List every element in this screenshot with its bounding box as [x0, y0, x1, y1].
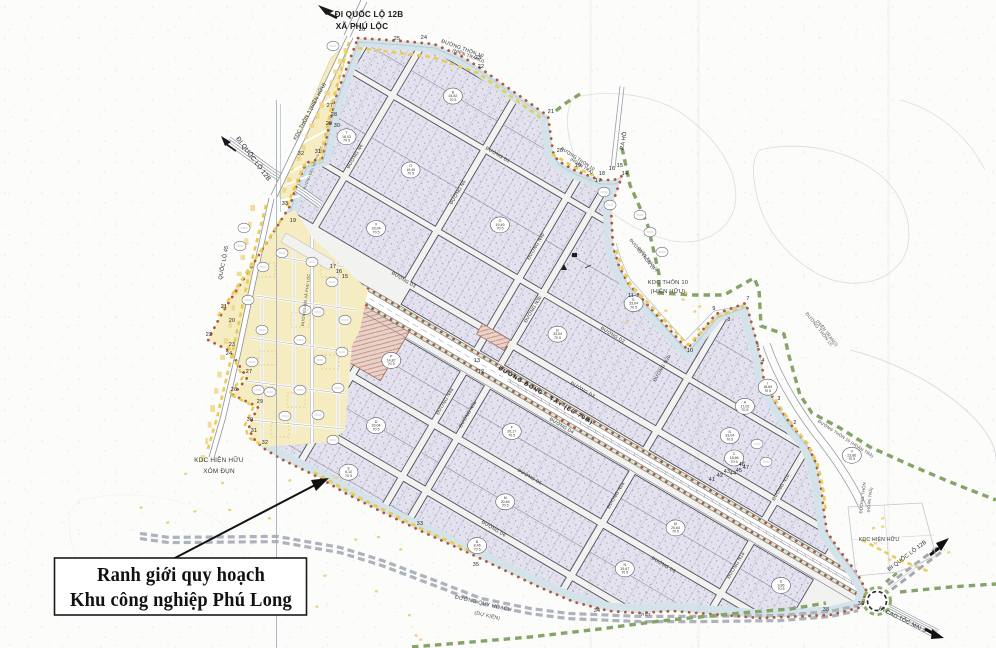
- svg-text:70 5: 70 5: [764, 389, 771, 393]
- svg-text:KDC THÔN 10: KDC THÔN 10: [648, 279, 688, 286]
- svg-text:RST: RST: [641, 612, 651, 617]
- svg-text:70 5: 70 5: [345, 474, 352, 478]
- svg-text:27: 27: [246, 369, 252, 375]
- svg-text:70 5: 70 5: [726, 438, 733, 442]
- svg-text:29: 29: [326, 121, 332, 127]
- svg-text:28: 28: [231, 387, 237, 393]
- svg-text:22: 22: [206, 332, 212, 338]
- svg-text:8: 8: [727, 317, 730, 323]
- svg-text:23: 23: [475, 55, 481, 61]
- svg-text:XÓM ĐỤN: XÓM ĐỤN: [203, 466, 235, 475]
- svg-text:(HIỆN HỮU): (HIỆN HỮU): [651, 287, 686, 295]
- svg-text:25: 25: [394, 36, 400, 42]
- svg-text:70 5: 70 5: [672, 530, 679, 534]
- svg-text:42: 42: [717, 473, 723, 479]
- svg-text:70 5: 70 5: [731, 460, 738, 464]
- svg-text:34: 34: [594, 608, 600, 614]
- svg-text:20: 20: [557, 148, 563, 154]
- svg-text:31: 31: [315, 149, 321, 155]
- svg-text:16: 16: [609, 166, 615, 172]
- svg-text:70 5: 70 5: [848, 457, 855, 461]
- svg-text:38: 38: [823, 607, 829, 613]
- svg-text:70 5: 70 5: [343, 139, 350, 143]
- svg-text:19: 19: [290, 218, 296, 224]
- svg-text:70 5: 70 5: [449, 98, 456, 102]
- svg-text:39: 39: [858, 601, 864, 607]
- svg-text:70 5: 70 5: [502, 504, 509, 508]
- svg-text:Khu công nghiệp Phú Long: Khu công nghiệp Phú Long: [70, 590, 292, 611]
- svg-text:70 5: 70 5: [388, 362, 395, 366]
- svg-text:23: 23: [229, 342, 235, 348]
- svg-text:12: 12: [478, 369, 484, 375]
- svg-text:Ranh giới quy hoạch: Ranh giới quy hoạch: [97, 565, 265, 586]
- svg-text:32: 32: [262, 440, 268, 446]
- svg-text:21: 21: [548, 109, 554, 115]
- svg-text:17: 17: [595, 178, 601, 184]
- svg-text:7: 7: [746, 296, 749, 302]
- svg-text:13: 13: [474, 358, 480, 364]
- svg-text:14: 14: [622, 171, 628, 177]
- svg-text:70 5: 70 5: [778, 587, 785, 591]
- svg-text:KDC HIỆN HỮU: KDC HIỆN HỮU: [859, 535, 900, 543]
- svg-text:70 5: 70 5: [554, 336, 561, 340]
- svg-text:35: 35: [473, 562, 479, 568]
- svg-text:31: 31: [251, 428, 257, 434]
- svg-text:70 5: 70 5: [741, 408, 748, 412]
- svg-text:28: 28: [331, 112, 337, 118]
- svg-text:70 5: 70 5: [630, 305, 637, 309]
- svg-text:18: 18: [599, 171, 605, 177]
- svg-text:10: 10: [687, 348, 693, 354]
- svg-text:33: 33: [417, 521, 423, 527]
- svg-text:24: 24: [421, 35, 427, 41]
- svg-text:70 5: 70 5: [497, 227, 504, 231]
- svg-text:41: 41: [709, 477, 715, 483]
- svg-text:30: 30: [247, 417, 253, 423]
- svg-text:70 5: 70 5: [621, 571, 628, 575]
- svg-text:9: 9: [712, 306, 715, 312]
- svg-text:3: 3: [777, 396, 780, 402]
- svg-text:5: 5: [756, 343, 759, 349]
- svg-text:30: 30: [334, 123, 340, 129]
- svg-text:70 5: 70 5: [373, 428, 380, 432]
- svg-text:21: 21: [221, 304, 227, 310]
- svg-text:27: 27: [327, 103, 333, 109]
- svg-text:KDC HIỆN HỮU: KDC HIỆN HỮU: [194, 455, 244, 464]
- svg-text:46: 46: [739, 462, 745, 468]
- svg-text:4: 4: [761, 358, 764, 364]
- svg-text:19: 19: [575, 163, 581, 169]
- svg-text:ĐI QUỐC LỘ 12B: ĐI QUỐC LỘ 12B: [335, 8, 404, 19]
- svg-text:24: 24: [226, 351, 232, 357]
- svg-text:15: 15: [342, 274, 348, 280]
- svg-text:26: 26: [359, 27, 365, 33]
- svg-text:43: 43: [724, 469, 730, 475]
- svg-text:29: 29: [257, 399, 263, 405]
- svg-text:15: 15: [617, 163, 623, 169]
- svg-text:11: 11: [628, 293, 634, 299]
- svg-text:70 5: 70 5: [508, 433, 515, 437]
- svg-text:45: 45: [736, 468, 742, 474]
- svg-text:20: 20: [229, 318, 235, 324]
- svg-text:70 5: 70 5: [407, 172, 414, 176]
- svg-text:32: 32: [298, 151, 304, 157]
- svg-text:2: 2: [793, 420, 796, 426]
- svg-text:70 5: 70 5: [373, 230, 380, 234]
- svg-text:22: 22: [478, 64, 484, 70]
- svg-text:33: 33: [282, 201, 288, 207]
- svg-text:70 5: 70 5: [474, 547, 481, 551]
